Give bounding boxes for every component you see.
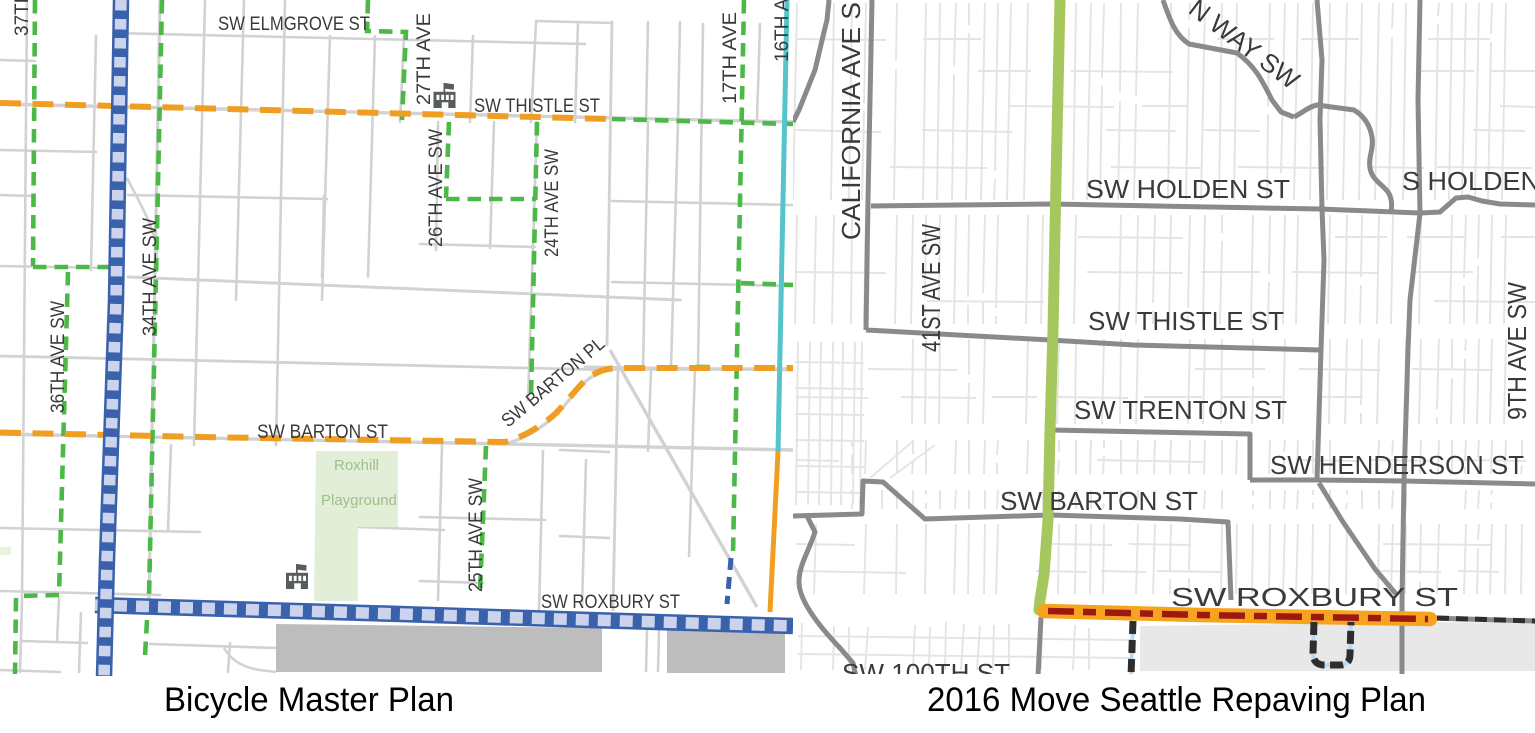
svg-text:9TH AVE SW: 9TH AVE SW bbox=[1502, 282, 1532, 420]
svg-text:36TH AVE SW: 36TH AVE SW bbox=[48, 301, 69, 413]
svg-text:26TH AVE SW: 26TH AVE SW bbox=[426, 129, 447, 247]
svg-text:37TH AVE SW: 37TH AVE SW bbox=[12, 0, 33, 36]
svg-text:Roxhill: Roxhill bbox=[334, 457, 379, 474]
svg-text:24TH AVE SW: 24TH AVE SW bbox=[542, 149, 563, 257]
svg-text:SW ROXBURY ST: SW ROXBURY ST bbox=[1171, 582, 1458, 612]
svg-text:SW HOLDEN ST: SW HOLDEN ST bbox=[1086, 174, 1290, 204]
svg-text:SW BARTON ST: SW BARTON ST bbox=[257, 422, 388, 443]
svg-text:17TH AVE: 17TH AVE bbox=[720, 12, 741, 104]
svg-text:16TH AVE S: 16TH AVE S bbox=[772, 0, 793, 62]
svg-text:41ST AVE SW: 41ST AVE SW bbox=[916, 224, 946, 352]
svg-text:Playground: Playground bbox=[321, 492, 397, 509]
svg-text:SW THISTLE ST: SW THISTLE ST bbox=[1088, 306, 1284, 336]
svg-text:27TH AVE: 27TH AVE bbox=[414, 13, 435, 105]
svg-text:SW ROXBURY ST: SW ROXBURY ST bbox=[541, 592, 680, 613]
svg-text:Bicycle Master Plan: Bicycle Master Plan bbox=[164, 681, 454, 719]
svg-text:SW TRENTON ST: SW TRENTON ST bbox=[1074, 395, 1287, 425]
svg-text:S HOLDEN ST: S HOLDEN ST bbox=[1402, 166, 1535, 196]
svg-text:SW HENDERSON ST: SW HENDERSON ST bbox=[1270, 450, 1524, 480]
svg-text:2016 Move Seattle Repaving Pla: 2016 Move Seattle Repaving Plan bbox=[927, 681, 1426, 719]
svg-text:CALIFORNIA AVE S: CALIFORNIA AVE S bbox=[836, 2, 866, 240]
svg-text:34TH AVE SW: 34TH AVE SW bbox=[140, 218, 161, 336]
svg-text:SW BARTON ST: SW BARTON ST bbox=[1000, 486, 1198, 516]
svg-text:SW ELMGROVE ST: SW ELMGROVE ST bbox=[218, 14, 370, 35]
svg-text:25TH AVE SW: 25TH AVE SW bbox=[466, 478, 487, 592]
svg-text:SW THISTLE ST: SW THISTLE ST bbox=[474, 96, 600, 117]
